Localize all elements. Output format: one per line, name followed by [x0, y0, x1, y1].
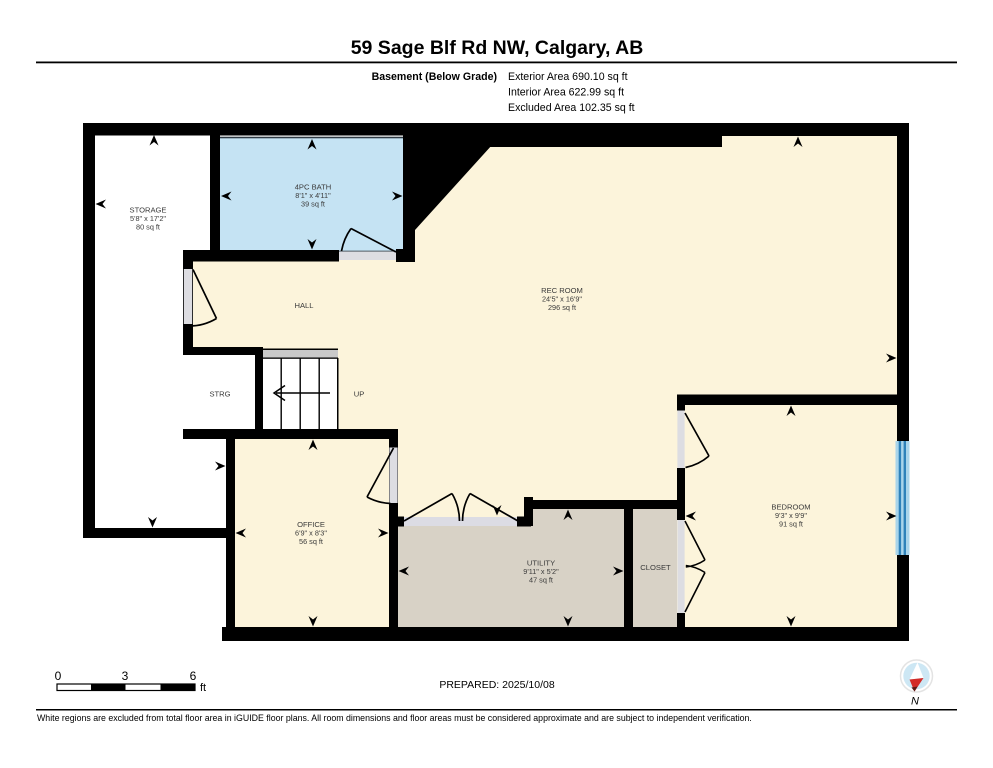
- svg-text:White regions are excluded fro: White regions are excluded from total fl…: [37, 713, 752, 723]
- svg-text:0: 0: [55, 669, 62, 683]
- svg-text:Interior Area 622.99 sq ft: Interior Area 622.99 sq ft: [508, 87, 624, 99]
- svg-text:STRG: STRG: [209, 390, 230, 399]
- svg-text:3: 3: [122, 669, 129, 683]
- svg-text:59 Sage Blf Rd NW, Calgary, AB: 59 Sage Blf Rd NW, Calgary, AB: [351, 37, 644, 59]
- svg-text:UP: UP: [354, 390, 365, 399]
- svg-text:80 sq ft: 80 sq ft: [136, 223, 160, 232]
- svg-text:Exterior Area 690.10 sq ft: Exterior Area 690.10 sq ft: [508, 71, 628, 83]
- svg-text:91 sq ft: 91 sq ft: [779, 520, 803, 529]
- svg-text:HALL: HALL: [295, 301, 314, 310]
- svg-text:ft: ft: [200, 682, 206, 694]
- svg-text:N: N: [911, 696, 919, 708]
- svg-text:PREPARED: 2025/10/08: PREPARED: 2025/10/08: [439, 679, 555, 691]
- svg-text:39 sq ft: 39 sq ft: [301, 200, 325, 209]
- svg-text:Basement (Below Grade): Basement (Below Grade): [372, 71, 497, 83]
- svg-text:56 sq ft: 56 sq ft: [299, 537, 323, 546]
- svg-text:Excluded Area 102.35 sq ft: Excluded Area 102.35 sq ft: [508, 102, 635, 114]
- svg-text:CLOSET: CLOSET: [640, 563, 671, 572]
- svg-text:296 sq ft: 296 sq ft: [548, 303, 576, 312]
- svg-text:6: 6: [190, 669, 197, 683]
- svg-text:47 sq ft: 47 sq ft: [529, 576, 553, 585]
